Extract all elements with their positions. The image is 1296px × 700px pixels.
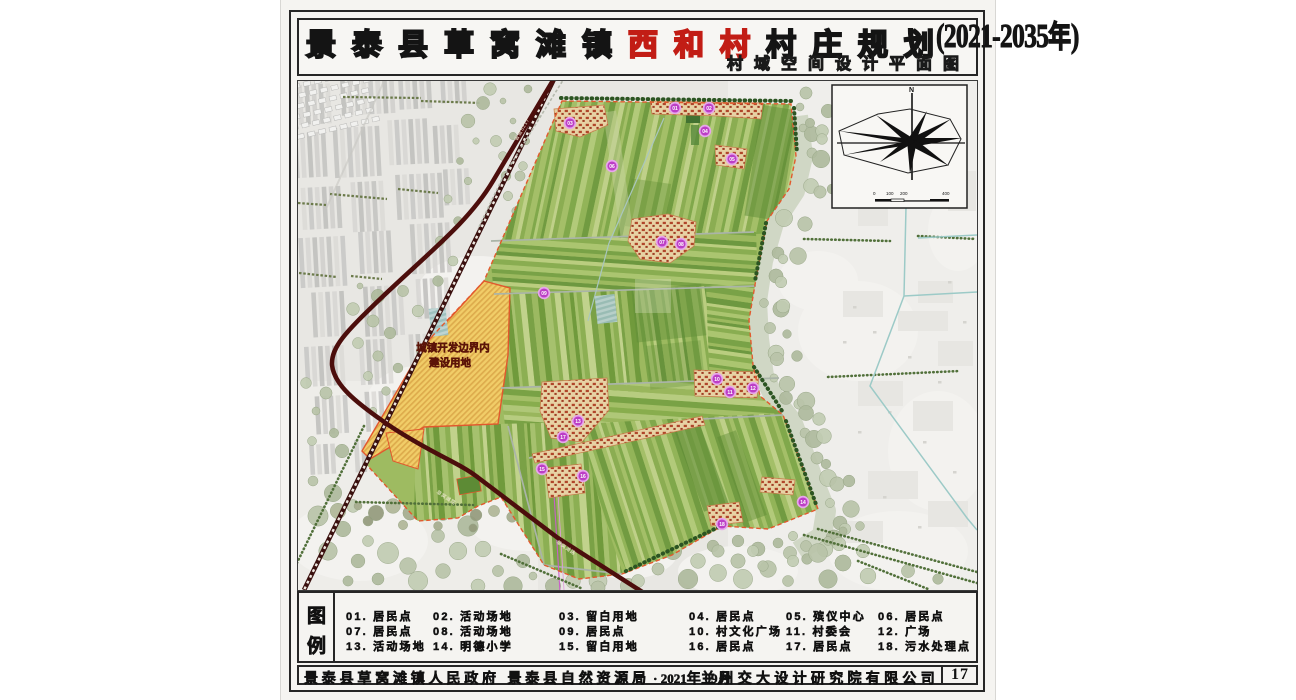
svg-text:09: 09 xyxy=(541,291,547,297)
svg-text:06: 06 xyxy=(609,164,615,170)
svg-text:城镇开发边界内: 城镇开发边界内 xyxy=(416,341,490,354)
svg-text:200: 200 xyxy=(900,191,908,196)
svg-text:11: 11 xyxy=(727,390,733,396)
svg-text:400: 400 xyxy=(942,191,950,196)
svg-text:建设用地: 建设用地 xyxy=(428,356,471,369)
svg-text:07: 07 xyxy=(659,240,665,246)
svg-text:04: 04 xyxy=(702,129,708,135)
svg-text:17: 17 xyxy=(560,435,566,441)
svg-text:15: 15 xyxy=(539,467,545,473)
svg-text:05: 05 xyxy=(729,157,735,163)
svg-text:13: 13 xyxy=(575,419,581,425)
svg-text:03: 03 xyxy=(567,121,573,127)
svg-text:14: 14 xyxy=(800,500,806,506)
svg-text:01: 01 xyxy=(672,106,678,112)
svg-text:100: 100 xyxy=(886,191,894,196)
svg-text:10: 10 xyxy=(714,377,720,383)
svg-text:18: 18 xyxy=(719,522,725,528)
svg-text:02: 02 xyxy=(706,106,712,112)
svg-text:N: N xyxy=(909,87,914,94)
svg-text:16: 16 xyxy=(580,474,586,480)
svg-text:08: 08 xyxy=(678,242,684,248)
svg-text:12: 12 xyxy=(750,386,756,392)
